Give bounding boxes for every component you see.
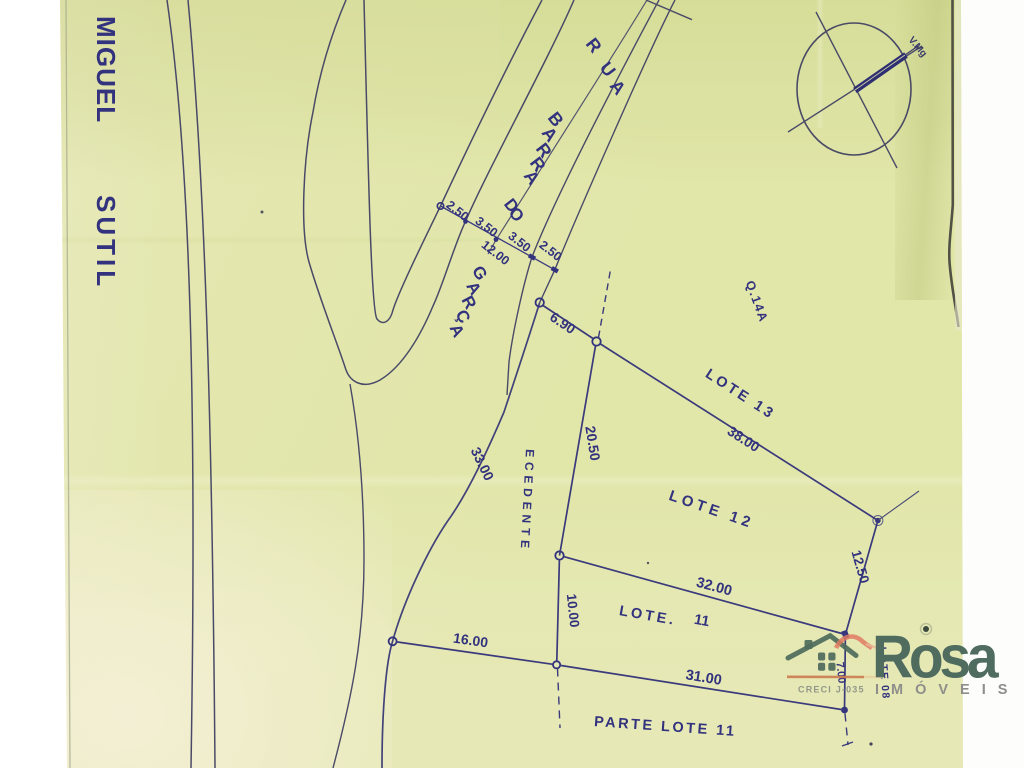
- svg-text:Rosa: Rosa: [872, 624, 999, 691]
- svg-text:IMÓVEIS: IMÓVEIS: [875, 680, 1019, 698]
